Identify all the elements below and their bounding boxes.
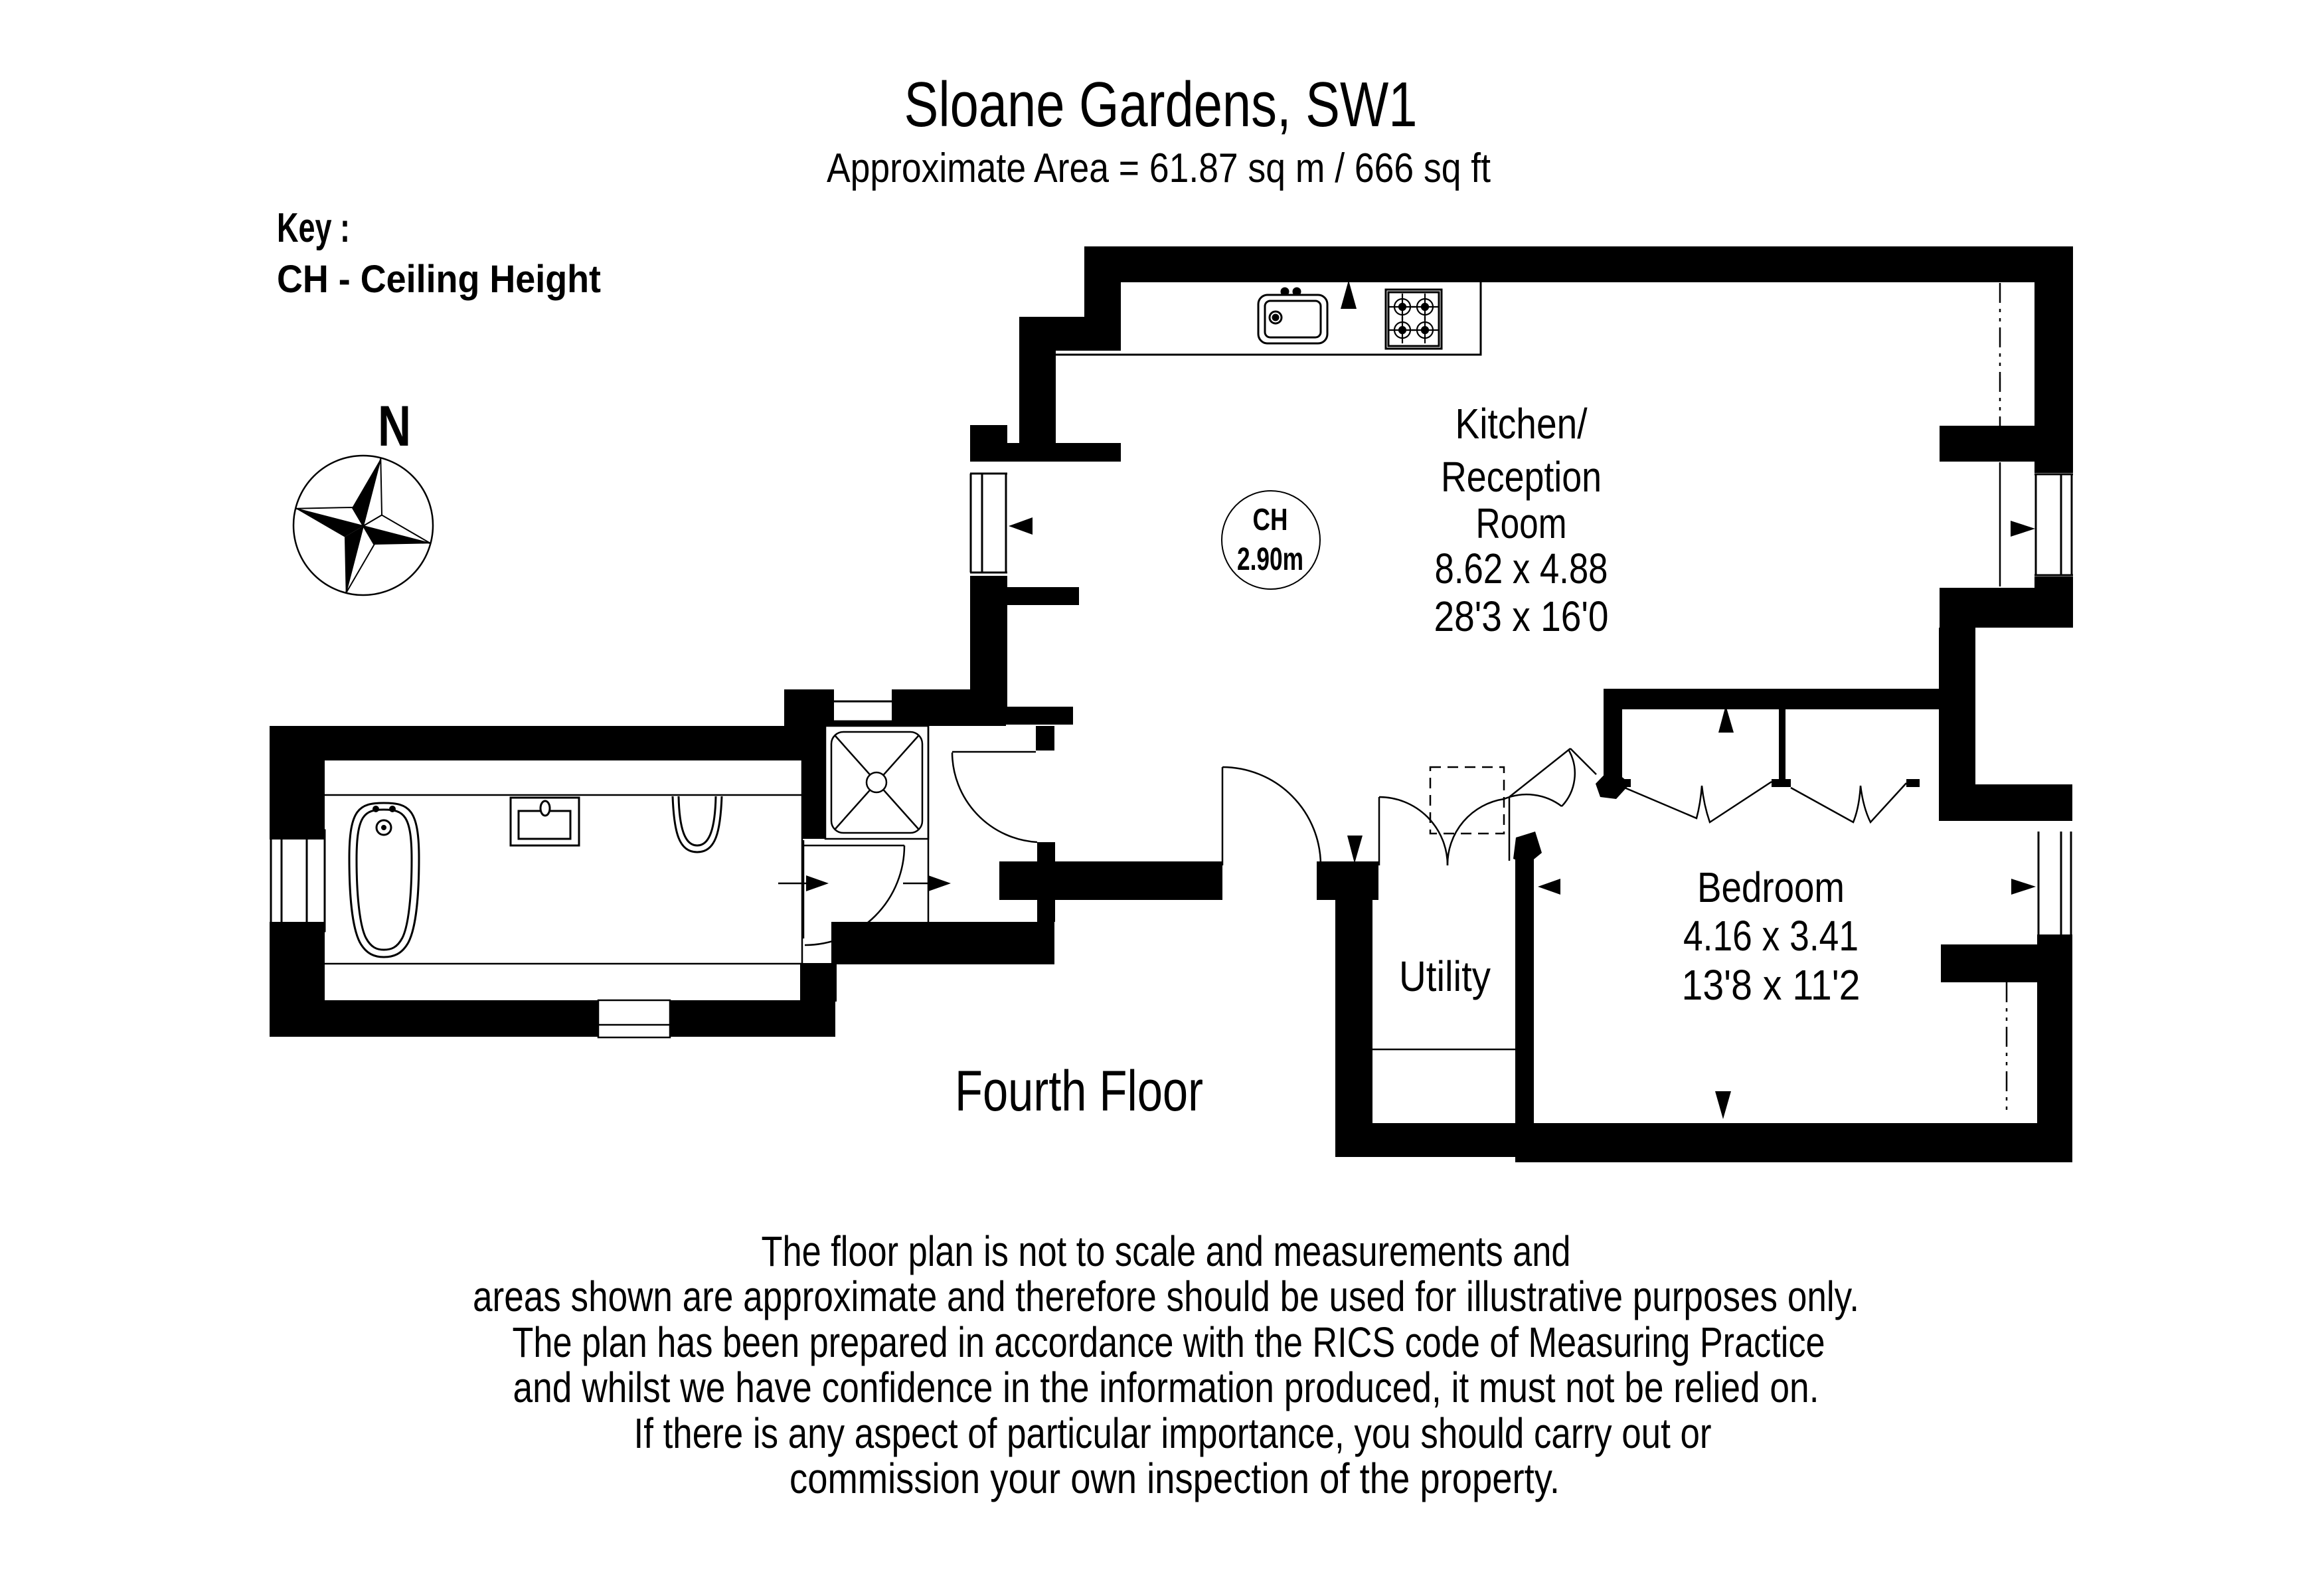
svg-text:Utility: Utility bbox=[1399, 952, 1491, 1000]
svg-text:N: N bbox=[378, 395, 411, 458]
svg-text:If there is any aspect of part: If there is any aspect of particular imp… bbox=[634, 1409, 1712, 1457]
svg-text:Approximate Area = 61.87 sq m: Approximate Area = 61.87 sq m / 666 sq f… bbox=[827, 145, 1491, 191]
svg-text:Key :: Key : bbox=[277, 205, 350, 251]
svg-text:8.62 x 4.88: 8.62 x 4.88 bbox=[1435, 545, 1608, 592]
svg-text:Reception: Reception bbox=[1441, 453, 1602, 501]
svg-text:4.16 x 3.41: 4.16 x 3.41 bbox=[1683, 912, 1859, 960]
svg-text:commission your own inspection: commission your own inspection of the pr… bbox=[789, 1455, 1560, 1502]
svg-text:The plan has been prepared in: The plan has been prepared in accordance… bbox=[513, 1318, 1825, 1366]
svg-text:2.90m: 2.90m bbox=[1237, 542, 1303, 577]
svg-text:CH: CH bbox=[1253, 502, 1288, 537]
svg-text:Kitchen/: Kitchen/ bbox=[1455, 400, 1588, 448]
svg-text:areas shown are approximate an: areas shown are approximate and therefor… bbox=[473, 1273, 1859, 1320]
svg-text:Fourth Floor: Fourth Floor bbox=[955, 1059, 1203, 1123]
svg-text:Sloane Gardens, SW1: Sloane Gardens, SW1 bbox=[904, 69, 1418, 140]
svg-text:28'3 x 16'0: 28'3 x 16'0 bbox=[1434, 592, 1609, 640]
svg-text:Room: Room bbox=[1476, 499, 1567, 547]
svg-text:and whilst we have confidence: and whilst we have confidence in the inf… bbox=[513, 1364, 1819, 1411]
svg-text:13'8 x 11'2: 13'8 x 11'2 bbox=[1682, 961, 1861, 1009]
svg-text:Bedroom: Bedroom bbox=[1697, 863, 1845, 911]
svg-text:CH - Ceiling Height: CH - Ceiling Height bbox=[277, 258, 601, 301]
svg-text:The floor plan is not to scale: The floor plan is not to scale and measu… bbox=[762, 1227, 1571, 1275]
